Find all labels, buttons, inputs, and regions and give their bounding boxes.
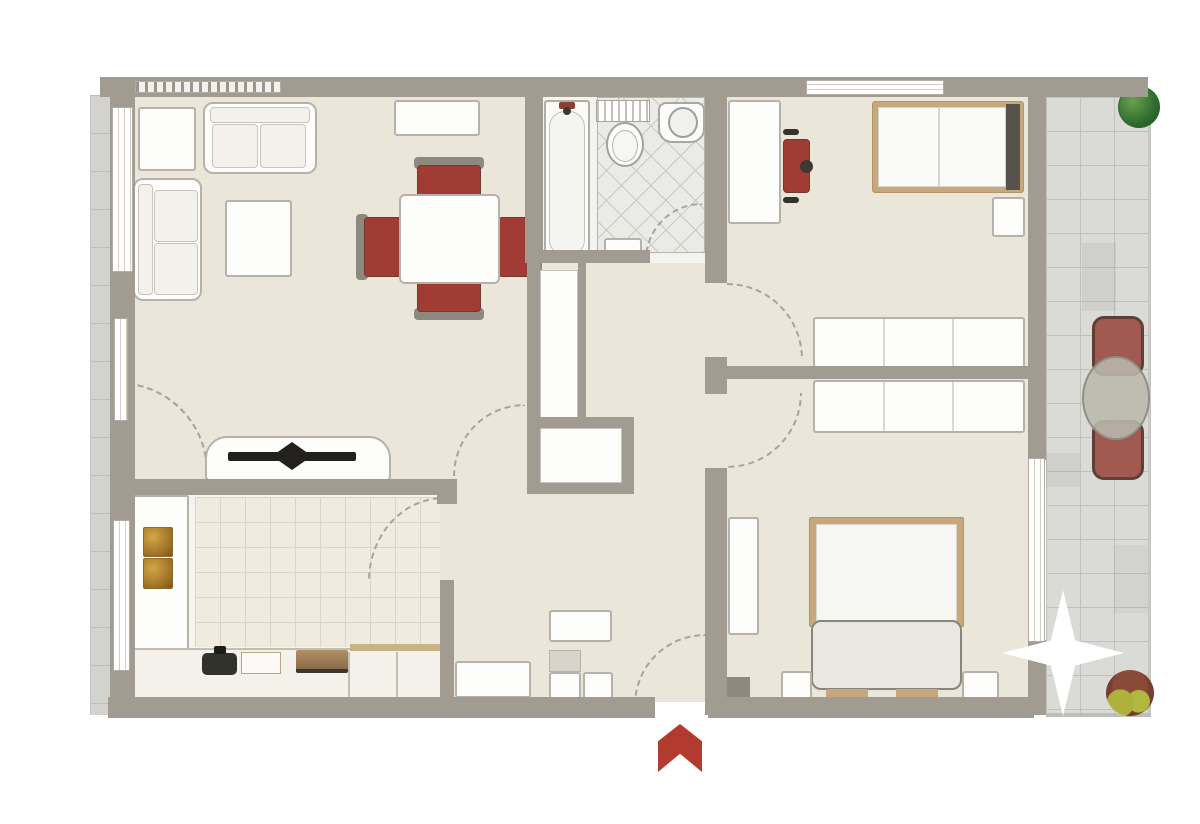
bedroom-shelf <box>728 517 759 635</box>
towel-radiator <box>596 100 650 122</box>
wall-bathroom-bottom <box>525 250 650 263</box>
hall-closet-tall <box>540 270 578 418</box>
wall-closet-left <box>527 263 540 492</box>
cooktop-hob <box>143 527 173 557</box>
double-bed-footpad <box>811 620 962 690</box>
patio-table <box>1082 356 1150 440</box>
wall-kitchen-top <box>112 479 457 495</box>
nightstand <box>992 197 1025 237</box>
hall-closet-square <box>540 428 622 483</box>
floor-plan <box>0 0 1200 824</box>
armchair-cushion <box>154 190 198 242</box>
wall-hall-lower <box>705 468 727 715</box>
sink-basin <box>668 107 698 138</box>
kitchen-stove <box>296 650 348 673</box>
wall-closet-top <box>527 417 634 428</box>
window-band-hatched <box>135 81 281 93</box>
cutting-board <box>241 652 281 674</box>
entrance-arrow <box>658 724 702 772</box>
window-living-narrow <box>114 318 128 421</box>
desk-chair-arm <box>783 197 799 203</box>
kitchen-sink <box>202 653 237 675</box>
wall-closet-bottom <box>527 483 634 494</box>
balcony-plant-autumn <box>1106 670 1154 716</box>
living-hutch <box>138 107 196 171</box>
balcony-tile-shade-2 <box>1046 453 1080 487</box>
sofa-cushion <box>260 124 306 168</box>
tub-drain <box>563 107 571 115</box>
wardrobe <box>813 380 1025 433</box>
wall-right-upper <box>1028 95 1046 460</box>
balcony-tile-shade-3 <box>1114 545 1148 613</box>
entry-shelf <box>549 610 612 642</box>
counter-divider <box>348 652 350 700</box>
single-bed-fold <box>938 108 940 186</box>
desk-chair-knob <box>800 160 813 173</box>
sink-faucet <box>214 646 226 654</box>
balcony-tile-shade-1 <box>1082 243 1116 311</box>
toilet-seat <box>612 130 638 162</box>
wardrobe <box>813 317 1025 368</box>
double-bed-duvet <box>816 524 957 621</box>
wall-bathroom-left <box>525 95 543 263</box>
sideboard <box>394 100 480 136</box>
armchair-cushion <box>154 243 198 295</box>
wall-junction <box>705 357 727 394</box>
wall-niche-right <box>578 263 586 420</box>
walkway-tiles <box>90 95 112 715</box>
wall-bottom-left <box>108 697 655 718</box>
wall-bottom-right <box>708 697 1034 718</box>
wall-kitchen-cap <box>437 479 457 504</box>
bathtub-basin <box>549 111 585 256</box>
dining-table <box>399 194 500 284</box>
sofa-back <box>210 107 310 123</box>
armchair-back <box>138 184 153 295</box>
window-bedroom-1 <box>806 80 944 95</box>
desk <box>728 100 781 224</box>
desk-chair-arm <box>783 129 799 135</box>
dining-chair <box>364 217 402 277</box>
cooktop-hob <box>143 558 173 589</box>
counter-divider <box>396 652 398 700</box>
wall-hall-upper <box>705 95 727 283</box>
window-living <box>112 107 133 272</box>
coffee-table <box>225 200 292 277</box>
single-bed-mattress <box>878 107 1006 187</box>
counter-edge <box>350 644 442 651</box>
window-kitchen <box>113 520 130 671</box>
sofa-cushion <box>212 124 258 168</box>
balcony-door <box>1028 458 1045 642</box>
wall-kitchen-right <box>440 580 454 702</box>
wall-bedroom-divider <box>727 366 1028 379</box>
entry-mat <box>549 650 581 672</box>
single-bed-headboard <box>1006 104 1020 190</box>
entry-cabinet <box>455 661 531 698</box>
